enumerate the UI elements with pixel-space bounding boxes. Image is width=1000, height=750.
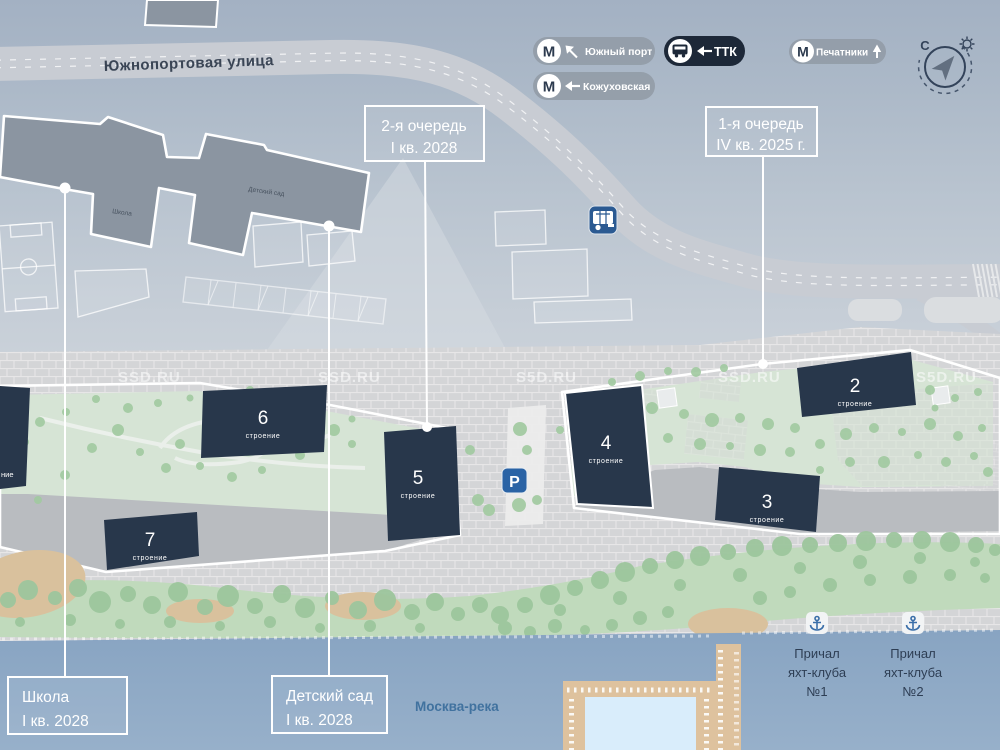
svg-text:строение: строение — [589, 458, 624, 465]
svg-text:6: 6 — [258, 408, 269, 429]
svg-text:строение: строение — [133, 555, 168, 562]
svg-text:Школа: Школа — [22, 689, 69, 706]
svg-text:7: 7 — [145, 530, 156, 551]
svg-text:яхт-клуба: яхт-клуба — [788, 665, 847, 680]
svg-text:I кв. 2028: I кв. 2028 — [391, 140, 458, 157]
svg-text:ние: ние — [1, 470, 14, 479]
svg-text:2-я очередь: 2-я очередь — [381, 118, 466, 135]
svg-text:строение: строение — [838, 401, 873, 408]
svg-text:5: 5 — [413, 468, 424, 489]
svg-text:яхт-клуба: яхт-клуба — [884, 665, 943, 680]
svg-text:ТТК: ТТК — [714, 45, 737, 59]
svg-text:1-я очередь: 1-я очередь — [718, 116, 803, 133]
svg-text:P: P — [509, 474, 520, 491]
svg-text:№1: №1 — [806, 684, 827, 699]
svg-text:I кв. 2028: I кв. 2028 — [286, 712, 353, 729]
svg-text:Москва-река: Москва-река — [415, 699, 499, 714]
svg-text:М: М — [543, 79, 556, 96]
svg-text:SSD.RU: SSD.RU — [318, 369, 381, 386]
svg-text:строение: строение — [246, 433, 281, 440]
svg-text:I кв. 2028: I кв. 2028 — [22, 713, 89, 730]
svg-text:SSD.RU: SSD.RU — [718, 369, 781, 386]
svg-text:3: 3 — [762, 492, 773, 513]
svg-text:4: 4 — [601, 433, 612, 454]
svg-text:SSD.RU: SSD.RU — [118, 369, 181, 386]
svg-text:№2: №2 — [902, 684, 923, 699]
svg-text:М: М — [797, 44, 809, 60]
svg-text:Детский сад: Детский сад — [286, 688, 373, 705]
svg-text:строение: строение — [401, 493, 436, 500]
svg-text:IV кв. 2025 г.: IV кв. 2025 г. — [716, 137, 805, 154]
svg-text:2: 2 — [850, 376, 861, 397]
svg-text:Печатники: Печатники — [816, 48, 868, 59]
svg-text:Причал: Причал — [794, 646, 839, 661]
svg-text:Кожуховская: Кожуховская — [583, 81, 650, 93]
svg-text:Южный порт: Южный порт — [585, 46, 652, 58]
svg-text:S5D.RU: S5D.RU — [516, 369, 577, 386]
svg-text:С: С — [920, 38, 930, 53]
svg-text:S5D.RU: S5D.RU — [916, 369, 977, 386]
svg-text:М: М — [543, 44, 556, 61]
svg-text:строение: строение — [750, 517, 785, 524]
svg-text:Причал: Причал — [890, 646, 935, 661]
